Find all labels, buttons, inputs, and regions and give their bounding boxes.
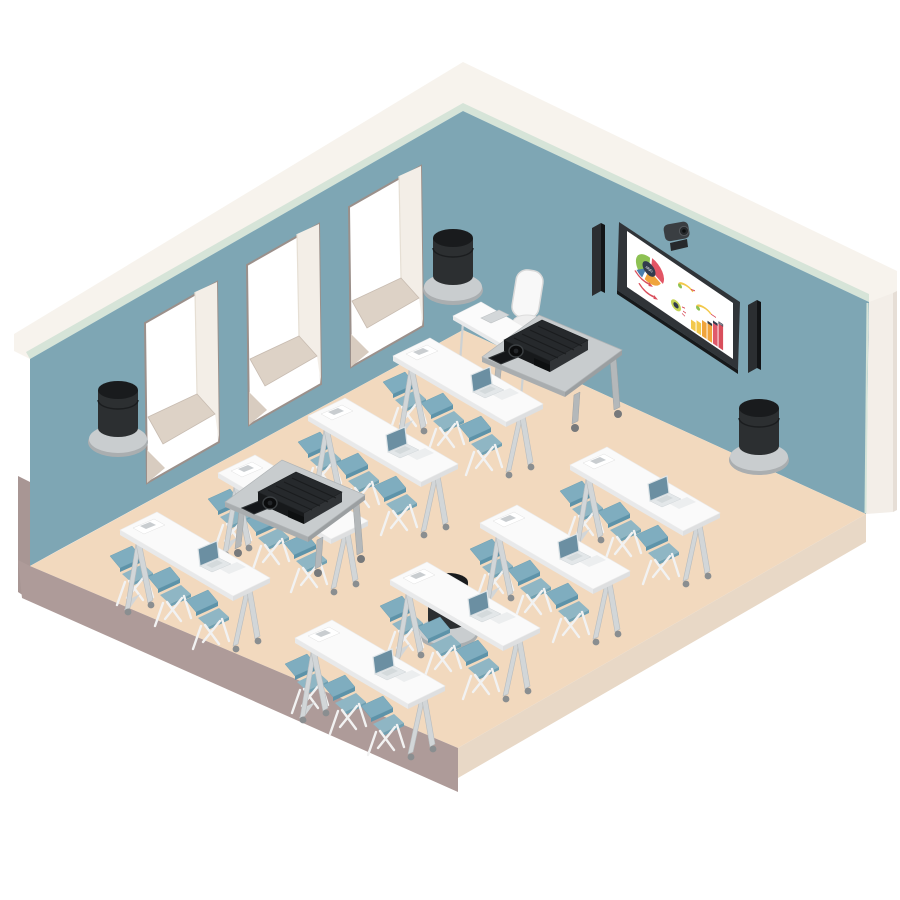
isometric-room-svg: 450 <box>0 0 900 900</box>
right-wall-edge <box>866 291 898 514</box>
soundbar-left <box>592 223 605 296</box>
soundbar-right <box>748 300 761 373</box>
classroom-illustration: 450 <box>0 0 900 900</box>
